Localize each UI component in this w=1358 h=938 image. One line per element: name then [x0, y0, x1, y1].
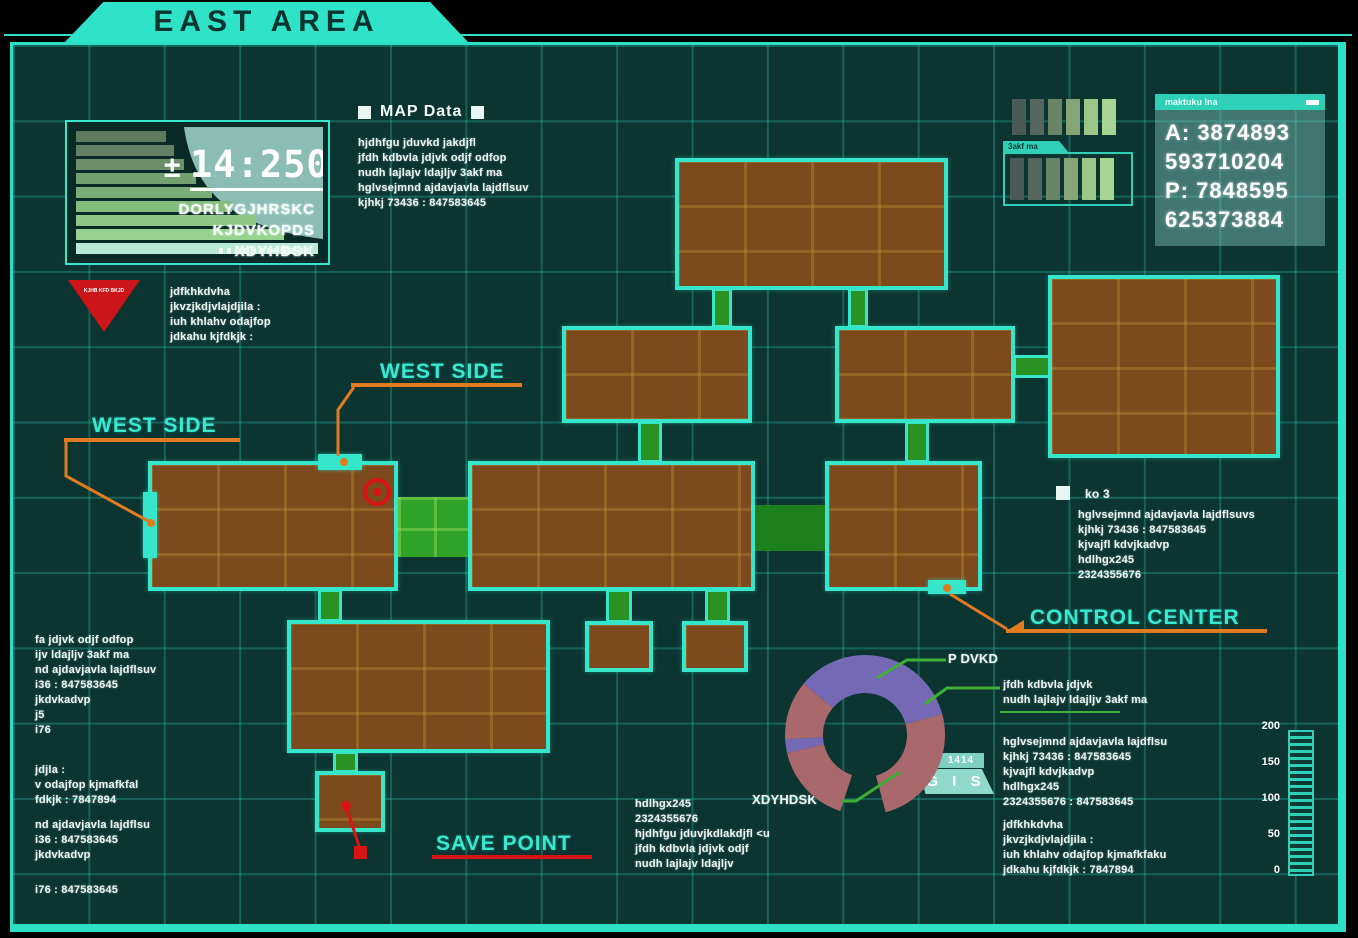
left-text-4: i76 : 847583645 [35, 883, 118, 898]
left-text-2: jdjla :v odajfop kjmafkfalfdkjk : 784789… [35, 763, 138, 808]
room-small-b[interactable] [682, 621, 748, 672]
text-line: ijv ldajljv 3akf ma [35, 648, 156, 663]
text-line: hjdhfgu jduvjkdlakdjfl <u [635, 827, 770, 842]
text-line: hglvsejmnd ajdavjavla lajdflsuv [358, 181, 529, 196]
warning-triangle-text: KJHB KFD BKJD [76, 288, 132, 294]
room-mid-left[interactable] [562, 326, 752, 423]
square-bullet-icon [1056, 486, 1070, 500]
meter-bar [1028, 158, 1042, 200]
west-entrance-marker[interactable] [143, 492, 157, 558]
text-line: 200 [1246, 720, 1280, 756]
meter-bar [76, 145, 174, 156]
map-data-header: MAP Data [358, 103, 484, 121]
text-line: hdlhgx245 [1003, 780, 1167, 795]
minimize-icon[interactable] [1306, 100, 1319, 105]
clock-dots-decoration [219, 248, 315, 254]
text-line: iuh khlahv odajfop [170, 315, 271, 330]
meter-bar [1084, 99, 1098, 135]
text-line: kjvajfl kdvjkadvp [1003, 765, 1167, 780]
ko-panel-title: ko 3 [1085, 487, 1110, 502]
clock-time: 14:2501 [190, 143, 323, 191]
room-bottom-large[interactable] [287, 620, 550, 753]
meter-bar [1100, 158, 1114, 200]
meter-bar [1012, 99, 1026, 135]
text-line: 2324355676 [635, 812, 770, 827]
control-center-marker[interactable] [928, 580, 966, 594]
text-line: nudh lajlajv ldajljv 3akf ma [1003, 693, 1147, 708]
text-line: j5 [35, 708, 156, 723]
warning-text: jdfkhkdvhajkvzjkdjvlajdjila :iuh khlahv … [170, 285, 271, 345]
scale-tick-labels: 200150100500 [1246, 720, 1280, 900]
text-line: 0 [1246, 864, 1280, 900]
text-line: 50 [1246, 828, 1280, 864]
text-line: hdlhgx245 [1078, 553, 1255, 568]
clock-panel-screen: ± 14:2501 DORLYGJHRSKCKJDVKOPDSXDYHDSK [72, 127, 323, 258]
text-line: fdkjk : 7847894 [35, 793, 138, 808]
text-line: 625373884 [1165, 205, 1290, 234]
meter-bar [1030, 99, 1044, 135]
east-area-map-screen: EAST AREA ± 14:2501 DORLYGJHRSKCKJDVKOPD… [0, 0, 1358, 938]
room-band-center[interactable] [468, 461, 755, 591]
west-side-top-label[interactable]: WEST SIDE [380, 360, 505, 384]
text-line: iuh khlahv odajfop kjmafkfaku [1003, 848, 1167, 863]
text-line: jdfkhkdvha [1003, 818, 1167, 833]
bottom-center-text: hdlhgx2452324355676hjdhfgu jduvjkdlakdjf… [635, 797, 770, 872]
text-line: jdfkhkdvha [170, 285, 271, 300]
corridor [318, 589, 342, 622]
map-data-text: hjdhfgu jduvkd jakdjfljfdh kdbvla jdjvk … [358, 136, 529, 211]
meter-bar [1010, 158, 1024, 200]
corridor [606, 589, 632, 623]
text-line: fa jdjvk odjf odfop [35, 633, 156, 648]
text-line: jfdh kdbvla jdjvk odjf odfop [358, 151, 529, 166]
text-line: jdkahu kjfdkjk : [170, 330, 271, 345]
meter-bar [1064, 158, 1078, 200]
bottom-right-text-b: jdfkhkdvhajkvzjkdjvlajdjila :iuh khlahv … [1003, 818, 1167, 878]
text-line: nudh lajlajv ldajljv [635, 857, 770, 872]
text-line: nd ajdavjavla lajdflsu [35, 818, 150, 833]
text-line: 2324355676 : 847583645 [1003, 795, 1167, 810]
text-line: 150 [1246, 756, 1280, 792]
left-text-1: fa jdjvk odjf odfopijv ldajljv 3akf mand… [35, 633, 156, 738]
room-save-point[interactable] [315, 771, 385, 832]
room-band-right[interactable] [825, 461, 982, 591]
corridor [1013, 355, 1051, 378]
west-side-marker[interactable] [318, 454, 362, 470]
info-panel-values: A: 3874893593710204P: 7848595625373884 [1165, 118, 1290, 234]
text-line: i36 : 847583645 [35, 833, 150, 848]
square-bullet-icon [471, 106, 484, 119]
text-line: jkvzjkdjvlajdjila : [170, 300, 271, 315]
text-line: i76 [35, 723, 156, 738]
corridor [705, 589, 730, 623]
text-line: A: 3874893 [1165, 118, 1290, 147]
text-line: DORLYGJHRSKC [179, 199, 315, 220]
corridor [905, 421, 929, 463]
control-center-label[interactable]: CONTROL CENTER [1030, 606, 1240, 630]
text-line: hglvsejmnd ajdavjavla lajdflsu [1003, 735, 1167, 750]
text-line: 593710204 [1165, 147, 1290, 176]
text-line: kjhkj 73436 : 847583645 [1078, 523, 1255, 538]
meter-bar [1046, 158, 1060, 200]
clock-sign: ± [164, 151, 180, 185]
meter-bar [1082, 158, 1096, 200]
bar-meter-bottom [1010, 158, 1114, 200]
room-east-large[interactable] [1048, 275, 1280, 458]
text-line: i76 : 847583645 [35, 883, 118, 898]
meter-bar [1048, 99, 1062, 135]
square-bullet-icon [358, 106, 371, 119]
map-data-title: MAP Data [380, 103, 462, 121]
left-text-3: nd ajdavjavla lajdflsui36 : 847583645jkd… [35, 818, 150, 863]
room-top-center[interactable] [675, 158, 948, 290]
meter-bar [76, 131, 166, 142]
text-line: 100 [1246, 792, 1280, 828]
corridor-dark-green [755, 505, 825, 551]
gis-value-badge: 1414 [938, 753, 984, 768]
text-line: jkdvkadvp [35, 848, 150, 863]
corridor-wide-green [398, 497, 468, 557]
text-line: hdlhgx245 [635, 797, 770, 812]
text-line: P: 7848595 [1165, 176, 1290, 205]
save-point-label[interactable]: SAVE POINT [436, 832, 572, 856]
area-title-banner: EAST AREA [65, 2, 468, 42]
coords-info-panel: maktuku lna A: 3874893593710204P: 784859… [1155, 94, 1325, 246]
west-side-left-label[interactable]: WEST SIDE [92, 414, 217, 438]
text-line: jkdvkadvp [35, 693, 156, 708]
text-line: nd ajdavjavla lajdflsuv [35, 663, 156, 678]
corridor [712, 288, 732, 328]
vertical-ruler [1288, 730, 1314, 876]
room-mid-right[interactable] [835, 326, 1015, 423]
donut-label-top: P DVKD [948, 651, 998, 666]
text-line: jfdh kdbvla jdjvk odjf [635, 842, 770, 857]
text-line: i36 : 847583645 [35, 678, 156, 693]
text-line: hjdhfgu jduvkd jakdjfl [358, 136, 529, 151]
donut-callout-text: jfdh kdbvla jdjvknudh lajlajv ldajljv 3a… [1003, 678, 1147, 708]
room-band-left[interactable] [148, 461, 398, 591]
corridor [848, 288, 868, 328]
text-line: v odajfop kjmafkfal [35, 778, 138, 793]
text-line: 2324355676 [1078, 568, 1255, 583]
corridor [638, 421, 662, 463]
text-line: KJDVKOPDS [179, 220, 315, 241]
text-line: kjhkj 73436 : 847583645 [358, 196, 529, 211]
gis-label-badge[interactable]: G I S [918, 769, 994, 794]
bottom-right-text-a: hglvsejmnd ajdavjavla lajdflsukjhkj 7343… [1003, 735, 1167, 810]
page-title: EAST AREA [153, 5, 379, 39]
text-line: jdkahu kjfdkjk : 7847894 [1003, 863, 1167, 878]
text-line: jfdh kdbvla jdjvk [1003, 678, 1147, 693]
room-small-a[interactable] [585, 621, 653, 672]
text-line: kjvajfl kdvjkadvp [1078, 538, 1255, 553]
text-line: jdjla : [35, 763, 138, 778]
meter-bar [1102, 99, 1116, 135]
meter-bar [1066, 99, 1080, 135]
clock-panel: ± 14:2501 DORLYGJHRSKCKJDVKOPDSXDYHDSK [65, 120, 330, 265]
text-line: kjhkj 73436 : 847583645 [1003, 750, 1167, 765]
info-panel-header: maktuku lna [1155, 94, 1325, 110]
ko-panel-text: hglvsejmnd ajdavjavla lajdflsuvskjhkj 73… [1078, 508, 1255, 583]
text-line: hglvsejmnd ajdavjavla lajdflsuvs [1078, 508, 1255, 523]
bar-meter-top [1012, 99, 1116, 135]
text-line: jkvzjkdjvlajdjila : [1003, 833, 1167, 848]
corridor [333, 751, 358, 773]
text-line: nudh lajlajv ldajljv 3akf ma [358, 166, 529, 181]
